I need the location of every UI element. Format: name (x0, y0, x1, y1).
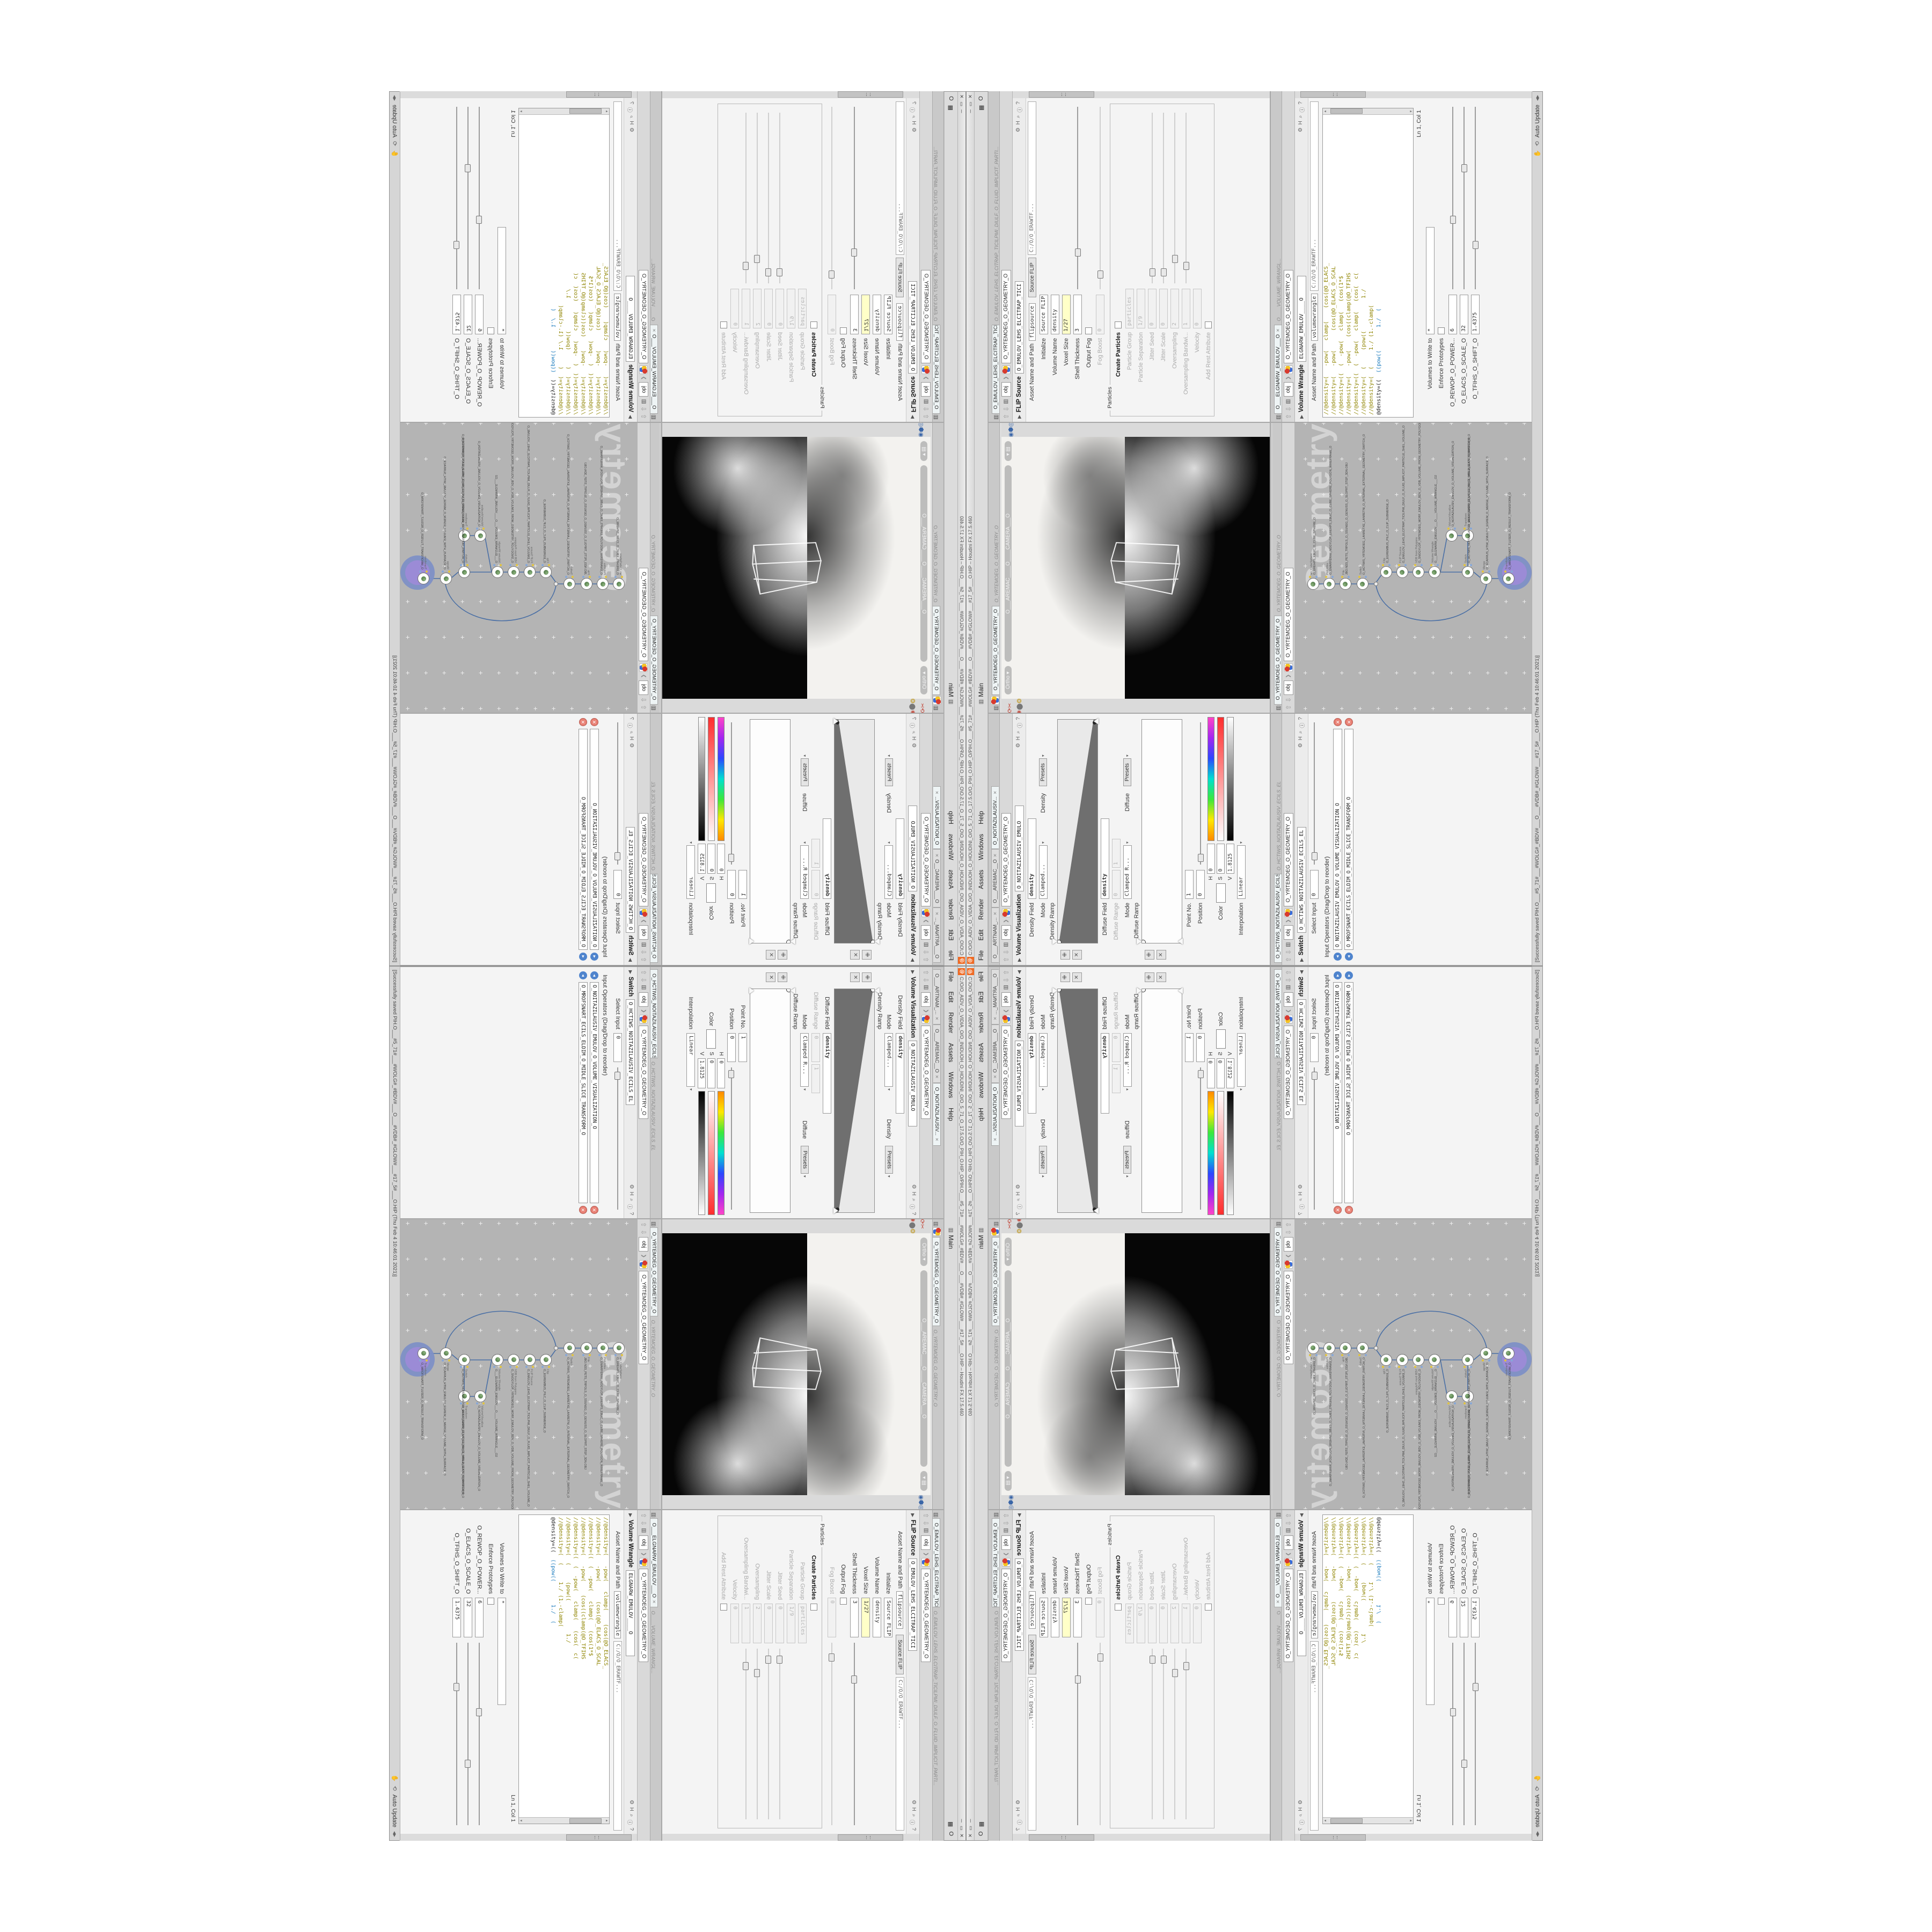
vex-code-editor[interactable]: //@density=( -pow( clamp( (cos(@O_ELACS_… (518, 108, 610, 418)
network-node[interactable]: FileJBO.ND3_PETS_TRPOLS_O_SSUNEG_O_GENUS… (1340, 578, 1351, 590)
node-flag-blue[interactable] (565, 1354, 567, 1356)
asset-path-field[interactable]: C:/O/O_ERAWTF... (1028, 101, 1036, 255)
network-node[interactable]: MergeO_ECAFRUS_HTIW_EMULOV_EGREM_O_MERGE… (1480, 573, 1492, 584)
checkbox[interactable] (720, 321, 727, 328)
param-value-field[interactable]: 1 (1182, 1604, 1190, 1643)
nav-down-icon[interactable]: ⇩ (923, 977, 930, 983)
node-name-field[interactable]: ELGNARW_EMULOV____O (626, 276, 635, 362)
network-node[interactable]: PolyWireO_EMARFERIW_NOGYLOP_EREHPS_EBUC_… (597, 1342, 609, 1354)
param-value-field[interactable]: 1/9 (787, 1604, 796, 1643)
scroll-down-icon[interactable]: ▾ (1409, 1818, 1413, 1824)
reorder-arrow-icon[interactable]: ◂ (590, 953, 598, 961)
expand-triangle-icon[interactable]: ▶ (1299, 415, 1305, 419)
presets-button[interactable]: Presets (885, 1146, 893, 1174)
pane-type-icon[interactable]: ▥ (641, 942, 647, 947)
param-value-field[interactable]: 1.4375 (453, 1598, 462, 1637)
ramp-add-button[interactable]: ✙ (1060, 950, 1070, 960)
network-canvas[interactable]: + + + + + + + + + + + + + + + + + + + + … (1295, 1219, 1532, 1509)
slider-handle[interactable] (766, 1656, 772, 1664)
ramp-delete-button[interactable]: ✕ (1157, 950, 1166, 960)
slider-handle[interactable] (829, 270, 835, 279)
param-value-field[interactable]: particles (1125, 289, 1134, 328)
point-number-input[interactable]: 1 (1185, 870, 1194, 899)
nav-down-icon[interactable]: ⇩ (640, 697, 648, 702)
help-icon[interactable]: ? (909, 717, 917, 720)
volumes-input[interactable]: * (498, 227, 507, 334)
breadcrumb-obj[interactable]: obj (639, 382, 649, 397)
breadcrumb-node[interactable]: O_YRTEMOEG_O_GEOMETRY_O (639, 813, 649, 906)
code-scrollbar[interactable]: ▴ ▾ (1323, 1817, 1413, 1824)
network-node[interactable]: FileJBO.ND3_PETS_TRPOLS_O_SSUNEG_O_GENUS… (581, 1342, 592, 1354)
pane-type-icon[interactable]: ▥ (923, 985, 929, 990)
breadcrumb-obj[interactable]: obj (1001, 1535, 1011, 1550)
vex-code-editor[interactable]: //@density=( -pow( clamp( (cos(@O_ELACS_… (1322, 1514, 1414, 1824)
slider-handle[interactable] (1097, 1653, 1103, 1662)
view-type-pill[interactable]: Ortho ▾ (1005, 1238, 1012, 1266)
magnifier-icon[interactable]: ⌕ (1298, 731, 1306, 734)
scrollbar-thumb[interactable] (566, 1834, 632, 1841)
node-flag-blue[interactable] (1331, 576, 1334, 578)
diffuse-ramp-canvas[interactable] (1141, 719, 1182, 943)
node-flag-blue[interactable] (1315, 576, 1318, 578)
node-flag-yellow[interactable] (1447, 528, 1450, 530)
slider-handle[interactable] (615, 1072, 621, 1080)
gear-icon[interactable]: ⚙ (1298, 1184, 1306, 1189)
breadcrumb-obj[interactable]: obj (921, 992, 931, 1007)
volumes-input[interactable]: * (498, 1598, 507, 1705)
node-flag-yellow[interactable] (1463, 564, 1466, 566)
pane-tab[interactable]: O___ELGNARW_EMULOV___O✕ (650, 1518, 658, 1607)
expand-triangle-icon[interactable]: ▶ (1299, 1513, 1305, 1517)
ramp-point-start[interactable] (870, 940, 875, 943)
slider-handle[interactable] (1461, 164, 1467, 172)
source-flip-button[interactable]: Source FLIP (1028, 258, 1036, 297)
pane-tab[interactable]: O_NOITAZILAUSIV...✕ (933, 786, 941, 849)
node-flag-blue[interactable] (1388, 1366, 1391, 1368)
slider-rail[interactable] (832, 1643, 833, 1825)
node-flag-blue[interactable] (419, 1359, 421, 1362)
tab-close-icon[interactable]: ✕ (993, 853, 998, 857)
nav-up-icon[interactable]: ⇧ (1285, 957, 1292, 962)
param-value-field[interactable]: 2 (753, 289, 762, 328)
param-value-field[interactable]: 0 (1159, 1604, 1168, 1643)
node-name-field[interactable]: ELGNARW_EMULOV____O (1297, 276, 1306, 362)
color-swatch[interactable] (1216, 1029, 1226, 1049)
tab-close-icon[interactable]: ✕ (1276, 328, 1280, 332)
pane-tab[interactable]: O___AREMAC__O✕ (933, 849, 941, 908)
slider-rail[interactable] (757, 1649, 758, 1819)
tab-close-icon[interactable]: ✕ (934, 1138, 939, 1141)
node-flag-blue[interactable] (1454, 528, 1456, 530)
breadcrumb-node[interactable]: O_YRTEMOEG_O_GEOMETRY_O (1001, 270, 1011, 363)
network-node[interactable]: TransformO_MROFSNART_TLUSER_O_RESULT_TRA… (418, 573, 429, 584)
network-node[interactable]: SwitchO_HCTIWS_NOITAZILAUSIV_ECILS_ELDIM… (1462, 1354, 1474, 1366)
param-value-field[interactable]: 0 (1193, 1604, 1202, 1643)
viewport-canvas[interactable] (662, 1233, 931, 1495)
nav-up-icon[interactable]: ⇧ (1285, 414, 1292, 419)
network-node[interactable]: ClipO_EGREMBUS_PILC_O_CLIP_SUBMERGE_O (540, 1354, 552, 1366)
info-icon[interactable]: ⓘ (1298, 723, 1306, 728)
expand-triangle-icon[interactable]: ▶ (1299, 970, 1305, 974)
slider-rail[interactable] (769, 113, 770, 283)
param-value-field[interactable]: 1.4375 (453, 295, 462, 334)
menu-item[interactable]: Edit (977, 986, 985, 1007)
desktop-selector[interactable]: ▥ Main (947, 1228, 955, 1249)
pane-tab[interactable]: O___ELGNARW_EMULOV___O✕ (1274, 1518, 1282, 1607)
param-value-field[interactable]: 1.4375 (1471, 1598, 1480, 1637)
help-icon[interactable]: ? (909, 1827, 917, 1831)
vertical-scrollbar[interactable] (662, 1833, 919, 1841)
density-ramp[interactable]: ✙ ✕ (1057, 719, 1098, 943)
slider-rail[interactable] (479, 107, 480, 289)
network-node[interactable]: SwitchO_HCTIWS_NOITAZILAUSIV_ECILS_ELDIM… (1462, 566, 1474, 578)
tab-close-icon[interactable]: ✕ (934, 1016, 939, 1020)
hscript-icon[interactable]: H (909, 121, 917, 125)
node-flag-blue[interactable] (614, 576, 617, 578)
remove-input-button[interactable]: ✕ (579, 1206, 587, 1214)
nav-up-icon[interactable]: ⇧ (923, 957, 930, 962)
gear-icon[interactable]: ⚙ (627, 1184, 635, 1189)
param-value-field[interactable]: 3 (851, 1598, 859, 1637)
node-flag-yellow[interactable] (1482, 1359, 1484, 1362)
node-flag-yellow[interactable] (1309, 1354, 1311, 1356)
slider-rail[interactable] (746, 113, 747, 283)
slider-rail[interactable] (1463, 1643, 1465, 1825)
node-flag-yellow[interactable] (516, 1366, 518, 1368)
breadcrumb-obj[interactable]: obj (1001, 382, 1011, 397)
update-mode-arrows-icon[interactable]: ◂▸ (1534, 1831, 1541, 1837)
ramp-marker-bottom[interactable] (1178, 938, 1183, 945)
expand-triangle-icon[interactable]: ▶ (910, 970, 916, 974)
param-value-field[interactable]: 1.4375 (1471, 295, 1480, 334)
nav-up-icon[interactable]: ⇧ (640, 414, 648, 419)
hue-input[interactable]: 0 (717, 1058, 725, 1088)
scrollbar-thumb[interactable] (838, 91, 903, 98)
slider-handle[interactable] (454, 241, 460, 249)
node-flag-yellow[interactable] (466, 1366, 469, 1368)
checkbox[interactable] (1438, 327, 1445, 334)
scrollbar-thumb[interactable] (1300, 91, 1366, 98)
help-icon[interactable]: ? (627, 717, 635, 720)
ramp-delete-button[interactable]: ✕ (1072, 972, 1082, 982)
maximize-button[interactable]: ▭ (968, 102, 974, 107)
pane-tab[interactable]: O_EMULOV_LEHS_ELCITRAP_TICI✕ (933, 1518, 940, 1607)
node-flag-yellow[interactable] (548, 1366, 550, 1368)
pane-tab[interactable]: O___ARTNAM_...✕ (991, 908, 999, 963)
checkbox[interactable] (1085, 1598, 1092, 1605)
asset-path-field[interactable]: C:/O/O_ERAWTF... (896, 1677, 904, 1831)
pane-tab[interactable]: O_YRTEMOEG_O_GEOMETRY_O (1274, 1227, 1282, 1316)
info-icon[interactable]: ⓘ (909, 723, 917, 728)
update-mode-arrows-icon[interactable]: ◂▸ (391, 95, 398, 101)
breadcrumb-node[interactable]: O_YRTEMOEG_O_GEOMETRY_O (921, 1026, 931, 1119)
ramp-add-button[interactable]: ✙ (1060, 972, 1070, 982)
ramp-delete-button[interactable]: ✕ (766, 972, 775, 982)
param-value-field[interactable]: 6 (475, 1598, 484, 1637)
node-flag-blue[interactable] (525, 1366, 528, 1368)
node-flag-yellow[interactable] (448, 570, 450, 573)
checkbox[interactable] (1205, 1604, 1212, 1611)
val-input[interactable]: 1.8125 (1226, 844, 1234, 874)
pane-type-icon[interactable]: ▥ (1003, 399, 1009, 404)
slider-rail[interactable] (1463, 107, 1465, 289)
diffuse-field-input[interactable]: density (1101, 818, 1109, 899)
diffuse-ramp-canvas[interactable] (750, 989, 791, 1213)
gear-icon[interactable]: ⚙ (909, 1800, 917, 1805)
nav-up-icon[interactable]: ⇧ (923, 1513, 930, 1518)
node-flag-blue[interactable] (598, 576, 601, 578)
slider-rail[interactable] (1452, 1643, 1453, 1825)
interpolation-dropdown[interactable]: Linear (1237, 1033, 1246, 1087)
network-node[interactable]: FLIP SourceO_EMULOV_LEHS_ELCITRAP_TICILP… (1396, 566, 1408, 578)
scroll-down-icon[interactable]: ▾ (519, 108, 523, 114)
node-flag-yellow[interactable] (605, 576, 607, 578)
node-flag-blue[interactable] (1488, 570, 1490, 573)
node-flag-yellow[interactable] (1398, 564, 1400, 566)
hue-input[interactable]: 0 (1207, 844, 1215, 874)
magnifier-icon[interactable]: ⌕ (1298, 115, 1306, 119)
gear-icon[interactable]: ⚙ (1015, 1184, 1023, 1189)
tab-close-icon[interactable]: ✕ (652, 1600, 656, 1604)
diffuse-ramp-canvas[interactable] (1141, 989, 1182, 1213)
input-operator-field[interactable]: O_MROFSNART_ECILS_ELDIM_O_MIDLE_SLICE_TR… (1344, 982, 1353, 1203)
ramp-marker-top[interactable] (1137, 938, 1141, 945)
asset-name-field[interactable]: flipsource (1029, 1591, 1036, 1629)
slider-rail[interactable] (731, 722, 733, 865)
interpolation-dropdown[interactable]: Linear (687, 1033, 696, 1087)
hue-gradient-slider[interactable] (718, 717, 724, 841)
density-field-input[interactable]: density (1028, 818, 1036, 899)
info-icon[interactable]: ⓘ (627, 723, 635, 728)
breadcrumb-node[interactable]: O_YRTEMOEG_O_GEOMETRY_O (921, 270, 931, 363)
slider-rail[interactable] (1185, 113, 1187, 283)
info-icon[interactable]: ⓘ (1298, 107, 1306, 113)
ramp-point-start[interactable] (786, 989, 791, 992)
remove-input-button[interactable]: ✕ (590, 718, 598, 726)
pane-splitter[interactable] (1271, 423, 1273, 713)
sat-input[interactable]: 0 (1217, 844, 1225, 874)
hue-input[interactable]: 0 (1207, 1058, 1215, 1088)
vertical-scrollbar[interactable] (400, 1833, 637, 1841)
network-node[interactable]: SwitchO_HCTIWS_NOITAZILAUSIV_ECILS_ELDIM… (458, 566, 470, 578)
network-node[interactable]: FLIP SourceO_EMULOV_LEHS_ELCITRAP_TICILP… (524, 1354, 536, 1366)
slider-rail[interactable] (1152, 113, 1153, 283)
gear-icon[interactable]: ⚙ (909, 743, 917, 748)
network-node[interactable]: VolumeVisualizaO_NOITAZILAUSIV_EMULOV_O_… (474, 530, 486, 541)
ramp-add-button[interactable]: ✙ (778, 950, 787, 960)
pane-type-icon[interactable]: ▥ (1003, 942, 1009, 947)
diffuse-range-min[interactable]: 0 (812, 870, 821, 899)
magnifier-icon[interactable]: ⌕ (909, 1198, 917, 1202)
expand-triangle-icon[interactable]: ▶ (628, 970, 634, 974)
scrollbar-thumb[interactable] (1029, 91, 1094, 98)
param-value-field[interactable]: density (873, 295, 882, 334)
param-value-field[interactable]: 1 (742, 1604, 751, 1643)
param-value-field[interactable]: particles (799, 1604, 807, 1643)
diffuse-range-max[interactable]: 1 (1112, 1064, 1121, 1093)
node-flag-blue[interactable] (541, 564, 544, 566)
pane-tab[interactable]: O___ELGNARW_EMULOV___O✕ (650, 325, 658, 414)
pane-tab[interactable]: O___AREMAC__O✕ (933, 1024, 941, 1083)
reorder-arrow-icon[interactable]: ◂ (1345, 953, 1353, 961)
node-flag-yellow[interactable] (482, 528, 485, 530)
node-flag-blue[interactable] (460, 564, 462, 566)
param-value-field[interactable]: 32 (1460, 1598, 1468, 1637)
node-flag-blue[interactable] (598, 1354, 601, 1356)
node-flag-yellow[interactable] (621, 576, 623, 578)
menu-item[interactable]: Render (947, 1007, 955, 1038)
breadcrumb-node[interactable]: O_YRTEMOEG_O_GEOMETRY_O (1284, 1569, 1293, 1662)
network-node[interactable]: VDB from PolygonsO_SNOGYLOP_YRTEMOEG_MOR… (508, 1354, 519, 1366)
hscript-icon[interactable]: H (627, 1192, 635, 1196)
node-flag-blue[interactable] (1421, 1366, 1423, 1368)
param-value-field[interactable]: 1/27 (1062, 1598, 1071, 1637)
help-icon[interactable]: ? (909, 1212, 917, 1215)
slider-rail[interactable] (468, 107, 469, 289)
ramp-marker-top[interactable] (1052, 938, 1057, 945)
slider-handle[interactable] (477, 216, 482, 224)
ramp-add-button[interactable]: ✙ (862, 972, 872, 982)
node-flag-blue[interactable] (1470, 564, 1472, 566)
asset-path-field[interactable]: C:/O/O_ERAWTF... (1310, 1641, 1319, 1831)
wire-junction-dot[interactable] (554, 1346, 558, 1350)
menu-item[interactable]: Render (947, 894, 955, 925)
node-flag-yellow[interactable] (1504, 570, 1506, 573)
pane-tab[interactable]: O_HCTIWS_NOITAZILAUSIV_ECILS_EL✕ (650, 969, 658, 1058)
network-node[interactable]: Volume WrangleO___ELGNARW_EMULOV___O____… (1429, 566, 1440, 578)
magnifier-icon[interactable]: ⌕ (627, 1814, 635, 1817)
scrollbar-thumb[interactable] (569, 1818, 602, 1824)
hscript-icon[interactable]: H (627, 121, 635, 125)
checkbox[interactable] (487, 1598, 494, 1605)
remove-input-button[interactable]: ✕ (1345, 718, 1353, 726)
menu-item[interactable]: Render (977, 1007, 985, 1038)
pane-type-icon[interactable]: ▥ (1285, 942, 1291, 947)
magnifier-icon[interactable]: ⌕ (1298, 1814, 1306, 1817)
nav-up-icon[interactable]: ⇧ (1285, 1222, 1292, 1227)
network-node[interactable]: ClipO_EGREMBUS_PILC_O_CLIP_SUBMERGE_O (1380, 1354, 1392, 1366)
pane-tab[interactable]: O___AREMAC__O✕ (991, 849, 999, 908)
pane-tab[interactable]: O___ARTNAM_...✕ (933, 908, 941, 963)
mode-dropdown[interactable]: Clamped R... (801, 1033, 809, 1087)
node-name-field[interactable]: O_NOITAZILAUSIV_EMULO (909, 806, 918, 891)
network-node[interactable]: SwitchO_HCTIWS_YRTEMOEG_LANRETXE_LANRETN… (563, 1342, 575, 1354)
remove-input-button[interactable]: ✕ (579, 718, 587, 726)
param-value-field[interactable]: particles (1125, 1604, 1134, 1643)
node-name-field[interactable]: O_EMULOV_LEHS_ELCITRAP_TICI (909, 1558, 918, 1651)
nav-up-icon[interactable]: ⇧ (923, 970, 930, 975)
param-value-field[interactable]: density (1051, 1598, 1059, 1637)
help-icon[interactable]: ? (1298, 1212, 1306, 1215)
input-operator-field[interactable]: O_NOITAZILAUSIV_EMULOV_O_VOLUME_VISUALIZ… (1333, 729, 1342, 950)
nav-up-icon[interactable]: ⇧ (640, 957, 648, 962)
slider-handle[interactable] (465, 1760, 471, 1768)
slider-handle[interactable] (1097, 270, 1103, 279)
hue-input[interactable]: 0 (717, 844, 725, 874)
tab-close-icon[interactable]: ✕ (993, 1075, 998, 1079)
slider-rail[interactable] (1077, 107, 1078, 289)
checkbox[interactable] (1115, 1604, 1122, 1611)
node-flag-yellow[interactable] (1447, 1402, 1450, 1404)
pane-type-icon[interactable]: ▥ (641, 985, 647, 990)
nav-down-icon[interactable]: ⇩ (1002, 1520, 1010, 1526)
diffuse-field-input[interactable]: density (823, 818, 832, 899)
param-value-field[interactable]: Source FLIP (884, 295, 893, 334)
slider-handle[interactable] (1172, 1669, 1178, 1677)
input-operator-field[interactable]: O_MROFSNART_ECILS_ELDIM_O_MIDLE_SLICE_TR… (1344, 729, 1353, 950)
param-value-field[interactable]: 6 (1448, 1598, 1457, 1637)
source-flip-button[interactable]: Source FLIP (896, 258, 904, 297)
slider-rail[interactable] (1163, 113, 1164, 283)
slider-handle[interactable] (1150, 268, 1155, 276)
gear-icon[interactable]: ⚙ (627, 743, 635, 748)
help-icon[interactable]: ? (1298, 101, 1306, 105)
breadcrumb-node[interactable]: O_YRTEMOEG_O_GEOMETRY_O (1284, 1026, 1293, 1119)
menu-item[interactable]: Windows (977, 1067, 985, 1103)
slider-handle[interactable] (777, 268, 783, 276)
breadcrumb-obj[interactable]: obj (1284, 1535, 1293, 1550)
magnifier-icon[interactable]: ⌕ (909, 115, 917, 119)
source-flip-button[interactable]: Source FLIP (1028, 1635, 1036, 1674)
update-mode-arrows-icon[interactable]: ◂▸ (391, 1831, 398, 1837)
expand-triangle-icon[interactable]: ▶ (1016, 1513, 1022, 1517)
vex-code-editor[interactable]: //@density=( -pow( clamp( (cos(@O_ELACS_… (1322, 108, 1414, 418)
node-flag-yellow[interactable] (605, 1354, 607, 1356)
info-icon[interactable]: ⓘ (909, 107, 917, 113)
desktop-selector[interactable]: ▥ Main (947, 683, 955, 704)
nav-up-icon[interactable]: ⇧ (923, 414, 930, 419)
node-flag-blue[interactable] (1348, 1354, 1350, 1356)
tab-close-icon[interactable]: ✕ (934, 1075, 939, 1079)
hue-gradient-slider[interactable] (718, 1091, 724, 1215)
slider-rail[interactable] (1185, 1649, 1187, 1819)
network-node[interactable]: VolumeVisualizaO_NOITAZILAUSIV_EMULOV_O_… (474, 1391, 486, 1402)
node-name-field[interactable]: O_EMULOV_LEHS_ELCITRAP_TICI (1015, 281, 1024, 374)
ramp-marker-top[interactable] (875, 987, 880, 994)
breadcrumb-node[interactable]: O_YRTEMOEG_O_GEOMETRY_O (1001, 1026, 1011, 1119)
node-flag-yellow[interactable] (426, 1359, 428, 1362)
pane-type-icon[interactable]: ▥ (641, 399, 647, 404)
node-flag-yellow[interactable] (1504, 1359, 1506, 1362)
param-value-field[interactable]: 32 (1460, 295, 1468, 334)
viewport-canvas[interactable] (662, 437, 931, 699)
gear-icon[interactable]: ⚙ (909, 1184, 917, 1189)
sat-gradient-slider[interactable] (708, 717, 715, 841)
nav-up-icon[interactable]: ⇧ (640, 1513, 648, 1518)
vertical-scrollbar[interactable] (662, 91, 919, 99)
nav-down-icon[interactable]: ⇩ (1285, 949, 1292, 955)
gear-icon[interactable]: ⚙ (1015, 743, 1023, 748)
expand-triangle-icon[interactable]: ▶ (628, 415, 634, 419)
presets-button[interactable]: Presets (1123, 758, 1131, 786)
sat-input[interactable]: 0 (707, 1058, 715, 1088)
remove-input-button[interactable]: ✕ (590, 1206, 598, 1214)
magnifier-icon[interactable]: ⌕ (1015, 1198, 1023, 1202)
pane-type-icon[interactable]: ▥ (923, 1528, 929, 1533)
nav-down-icon[interactable]: ⇩ (640, 977, 648, 983)
help-icon[interactable]: ? (1015, 1827, 1023, 1831)
val-gradient-slider[interactable] (698, 1091, 705, 1215)
density-ramp[interactable]: ✙ ✕ (834, 989, 875, 1213)
expand-triangle-icon[interactable]: ▶ (1016, 415, 1022, 419)
close-button[interactable]: ✕ (968, 1833, 974, 1838)
node-flag-yellow[interactable] (548, 564, 550, 566)
slider-handle[interactable] (777, 1656, 783, 1664)
slider-handle[interactable] (1172, 255, 1178, 263)
close-button[interactable]: ✕ (959, 94, 965, 99)
ramp-marker-bottom[interactable] (1094, 1207, 1099, 1214)
slider-handle[interactable] (755, 255, 760, 263)
